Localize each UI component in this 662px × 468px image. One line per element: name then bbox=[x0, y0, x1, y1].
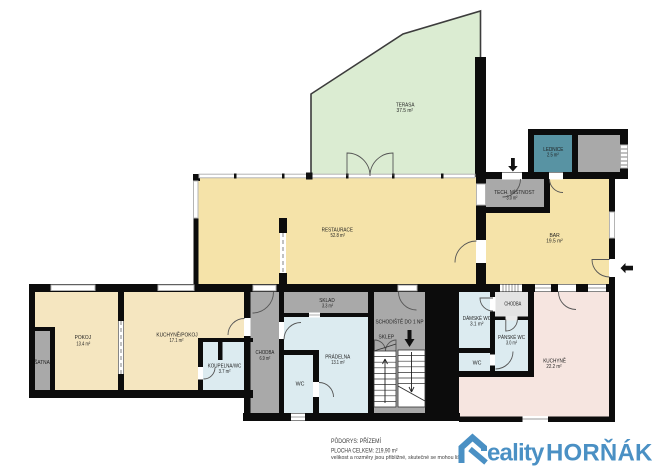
svg-text:52.8 m²: 52.8 m² bbox=[331, 233, 346, 239]
svg-text:19.5 m²: 19.5 m² bbox=[546, 238, 563, 244]
svg-text:velikost a rozměry jsou přibli: velikost a rozměry jsou přibližné, skute… bbox=[331, 455, 463, 461]
svg-text:POKOJ: POKOJ bbox=[75, 335, 92, 341]
svg-text:37.5 m²: 37.5 m² bbox=[397, 108, 414, 114]
svg-text:6.9 m²: 6.9 m² bbox=[259, 356, 270, 362]
svg-text:ŠATNA: ŠATNA bbox=[34, 359, 50, 366]
svg-text:13.4 m²: 13.4 m² bbox=[76, 341, 90, 347]
svg-text:eality: eality bbox=[487, 440, 545, 467]
svg-text:PŮDORYS: PŘÍZEMÍ: PŮDORYS: PŘÍZEMÍ bbox=[331, 437, 381, 445]
svg-text:SKLEP: SKLEP bbox=[379, 335, 395, 341]
svg-text:PLOCHA CELKEM: 219,90 m²: PLOCHA CELKEM: 219,90 m² bbox=[331, 449, 398, 455]
svg-text:3.3 m²: 3.3 m² bbox=[322, 304, 333, 310]
svg-text:CHODBA: CHODBA bbox=[504, 302, 521, 308]
svg-text:22.2 m²: 22.2 m² bbox=[546, 364, 561, 370]
svg-text:17.1 m²: 17.1 m² bbox=[170, 338, 184, 344]
svg-text:SCHODIŠTĚ DO 1 NP: SCHODIŠTĚ DO 1 NP bbox=[376, 318, 424, 326]
svg-text:3.0 m²: 3.0 m² bbox=[506, 340, 517, 346]
svg-text:HORŇÁK: HORŇÁK bbox=[546, 439, 653, 467]
svg-text:13.1 m²: 13.1 m² bbox=[331, 360, 345, 366]
svg-text:CHODBA: CHODBA bbox=[255, 350, 274, 356]
svg-text:3.7 m²: 3.7 m² bbox=[219, 369, 231, 375]
svg-text:2.5 m²: 2.5 m² bbox=[547, 153, 559, 159]
svg-text:WC: WC bbox=[473, 361, 482, 367]
svg-text:WC: WC bbox=[296, 382, 305, 388]
svg-text:KUCHYNĚ/POKOJ: KUCHYNĚ/POKOJ bbox=[156, 330, 197, 338]
svg-text:3.1 m²: 3.1 m² bbox=[470, 321, 484, 327]
svg-text:3.0 m²: 3.0 m² bbox=[507, 196, 518, 202]
